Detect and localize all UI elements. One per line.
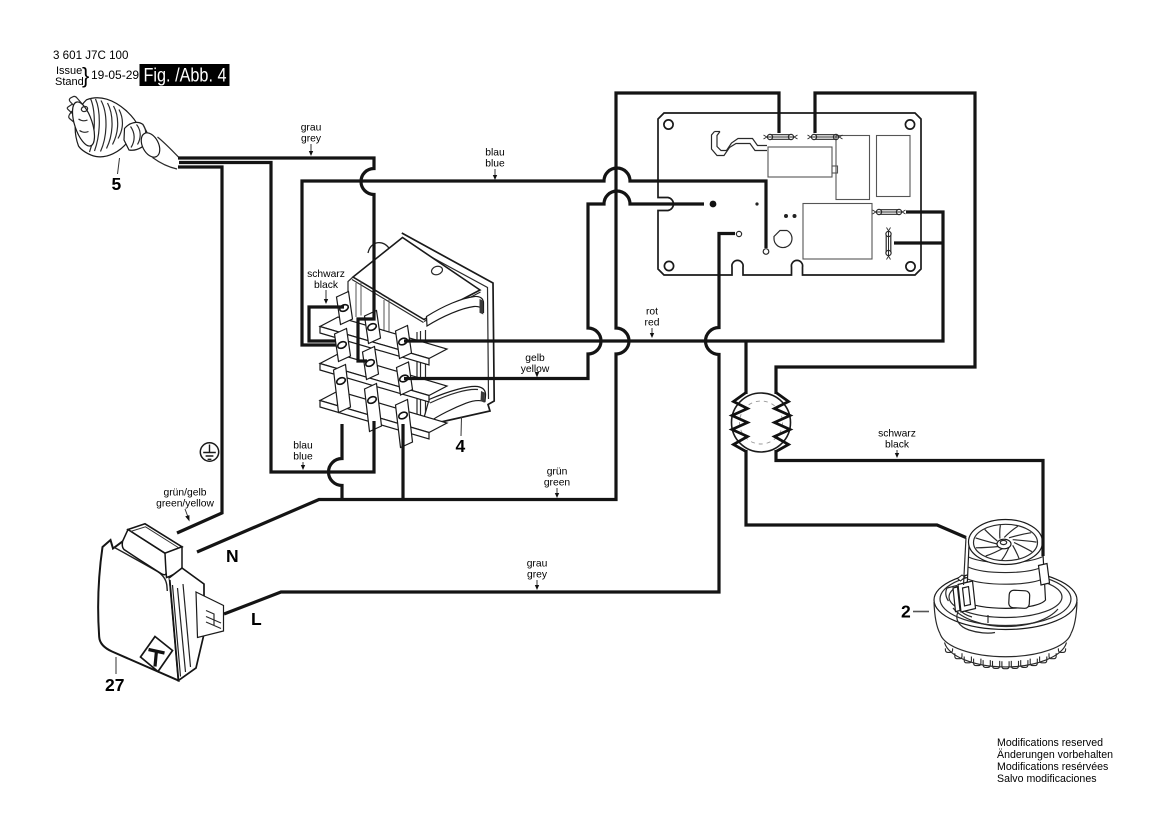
svg-text:5: 5 (112, 174, 122, 194)
svg-text:19-05-29: 19-05-29 (91, 68, 139, 82)
svg-text:Stand: Stand (55, 76, 84, 88)
svg-text:Fig. /Abb. 4: Fig. /Abb. 4 (144, 66, 227, 87)
svg-text:}: } (82, 63, 89, 88)
svg-text:blue: blue (485, 159, 505, 170)
svg-text:blau: blau (293, 441, 313, 452)
svg-text:grau: grau (527, 559, 548, 570)
svg-text:grey: grey (301, 134, 322, 145)
svg-text:gelb: gelb (525, 353, 545, 364)
svg-text:N: N (226, 546, 239, 566)
svg-text:green: green (544, 478, 571, 489)
svg-text:grün/gelb: grün/gelb (164, 488, 207, 499)
svg-text:blue: blue (293, 452, 313, 463)
svg-text:green/yellow: green/yellow (156, 499, 214, 510)
svg-text:grau: grau (301, 123, 322, 134)
svg-text:Änderungen vorbehalten: Änderungen vorbehalten (997, 749, 1113, 761)
svg-text:schwarz: schwarz (307, 269, 345, 280)
svg-text:Salvo modificaciones: Salvo modificaciones (997, 773, 1097, 785)
svg-text:L: L (251, 609, 262, 629)
svg-text:3 601 J7C 100: 3 601 J7C 100 (53, 49, 128, 62)
svg-text:4: 4 (456, 436, 466, 456)
svg-text:red: red (645, 318, 660, 329)
svg-text:2: 2 (901, 602, 911, 622)
svg-text:27: 27 (105, 675, 124, 695)
svg-text:rot: rot (646, 307, 658, 318)
svg-text:Modifications resérvées: Modifications resérvées (997, 761, 1108, 773)
svg-text:grün: grün (547, 467, 568, 478)
svg-text:black: black (314, 280, 339, 291)
svg-text:blau: blau (485, 148, 505, 159)
svg-text:grey: grey (527, 570, 548, 581)
svg-text:yellow: yellow (521, 364, 550, 375)
svg-text:black: black (885, 440, 910, 451)
svg-text:schwarz: schwarz (878, 429, 916, 440)
svg-text:Modifications reserved: Modifications reserved (997, 737, 1103, 749)
